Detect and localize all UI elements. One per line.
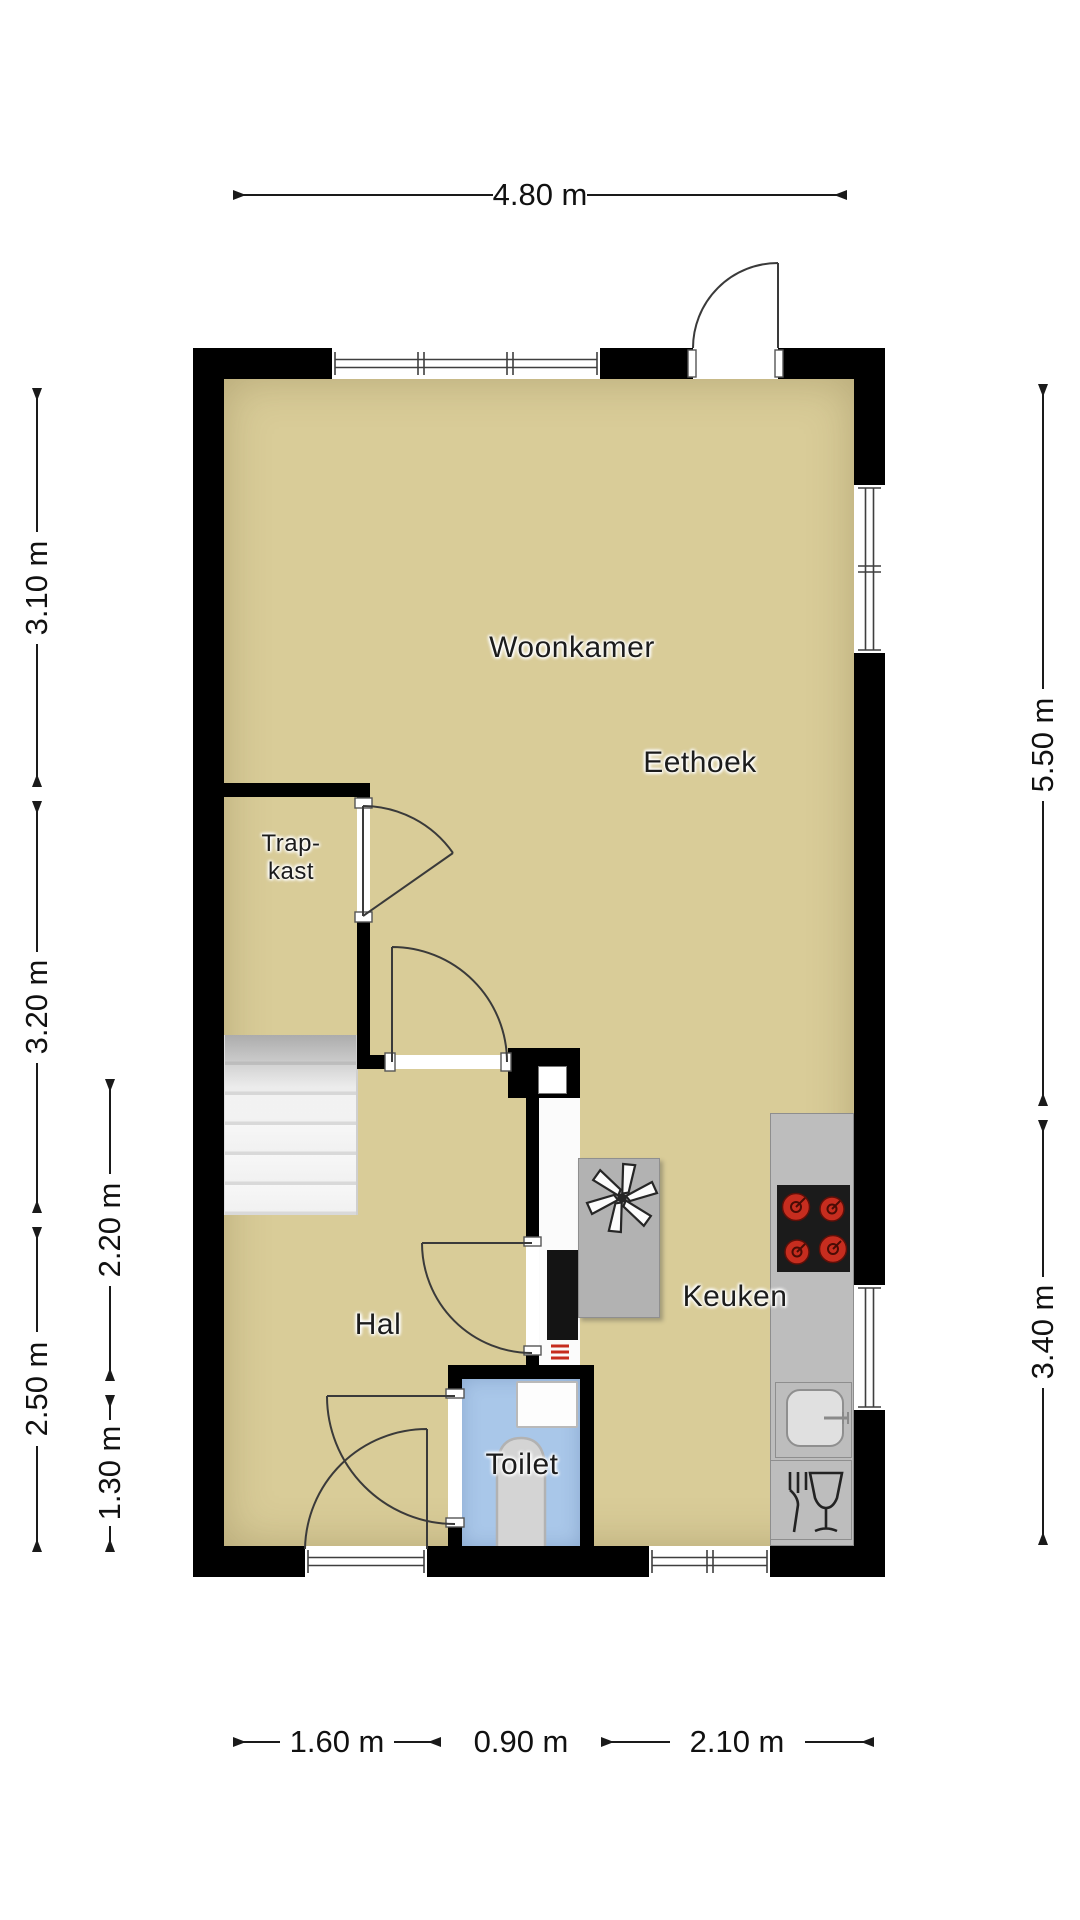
room-label-trapkast-line2: kast bbox=[262, 858, 321, 886]
extractor-fan-icon bbox=[587, 1160, 657, 1237]
room-label-trapkast-line1: Trap- bbox=[262, 830, 321, 858]
right-window-glazing bbox=[858, 488, 881, 650]
stove-burners-icon bbox=[783, 1194, 847, 1265]
room-label-eethoek: Eethoek bbox=[643, 746, 757, 780]
dim-label-bottom-090: 0.90 m bbox=[474, 1724, 569, 1760]
top-window-glazing bbox=[335, 352, 597, 375]
floor-plan: Woonkamer Eethoek Trap- kast Hal Toilet … bbox=[0, 0, 1080, 1920]
hal-door-arc bbox=[392, 947, 507, 1062]
room-label-trapkast: Trap- kast bbox=[262, 830, 321, 886]
dim-label-left-320: 3.20 m bbox=[19, 960, 55, 1055]
room-label-toilet: Toilet bbox=[485, 1448, 558, 1482]
plan-detail-layer bbox=[0, 0, 1080, 1920]
dim-label-inner-130: 1.30 m bbox=[92, 1426, 128, 1521]
dim-label-bottom-210: 2.10 m bbox=[690, 1724, 785, 1760]
room-label-hal: Hal bbox=[355, 1308, 402, 1342]
dim-label-bottom-160: 1.60 m bbox=[290, 1724, 385, 1760]
entrance-door-arc bbox=[693, 263, 778, 348]
closet-door-arc bbox=[422, 1243, 532, 1353]
boiler-red-element-icon bbox=[551, 1346, 569, 1358]
dim-label-right-550: 5.50 m bbox=[1025, 698, 1061, 793]
door-jambs bbox=[355, 350, 783, 1527]
trapkast-door-arc bbox=[363, 806, 453, 916]
dim-label-inner-220: 2.20 m bbox=[92, 1183, 128, 1278]
room-label-woonkamer: Woonkamer bbox=[489, 631, 655, 665]
sink-icon bbox=[787, 1390, 849, 1446]
dim-label-left-250: 2.50 m bbox=[19, 1342, 55, 1437]
room-label-keuken: Keuken bbox=[683, 1280, 788, 1314]
dishwasher-icon bbox=[790, 1472, 842, 1532]
dim-label-left-310: 3.10 m bbox=[19, 541, 55, 636]
front-door-frame bbox=[308, 1550, 424, 1573]
dim-label-right-340: 3.40 m bbox=[1025, 1285, 1061, 1380]
dim-label-top-width: 4.80 m bbox=[493, 177, 588, 213]
bottom-window-glazing bbox=[652, 1550, 767, 1573]
kitchen-window-glazing bbox=[858, 1288, 881, 1407]
